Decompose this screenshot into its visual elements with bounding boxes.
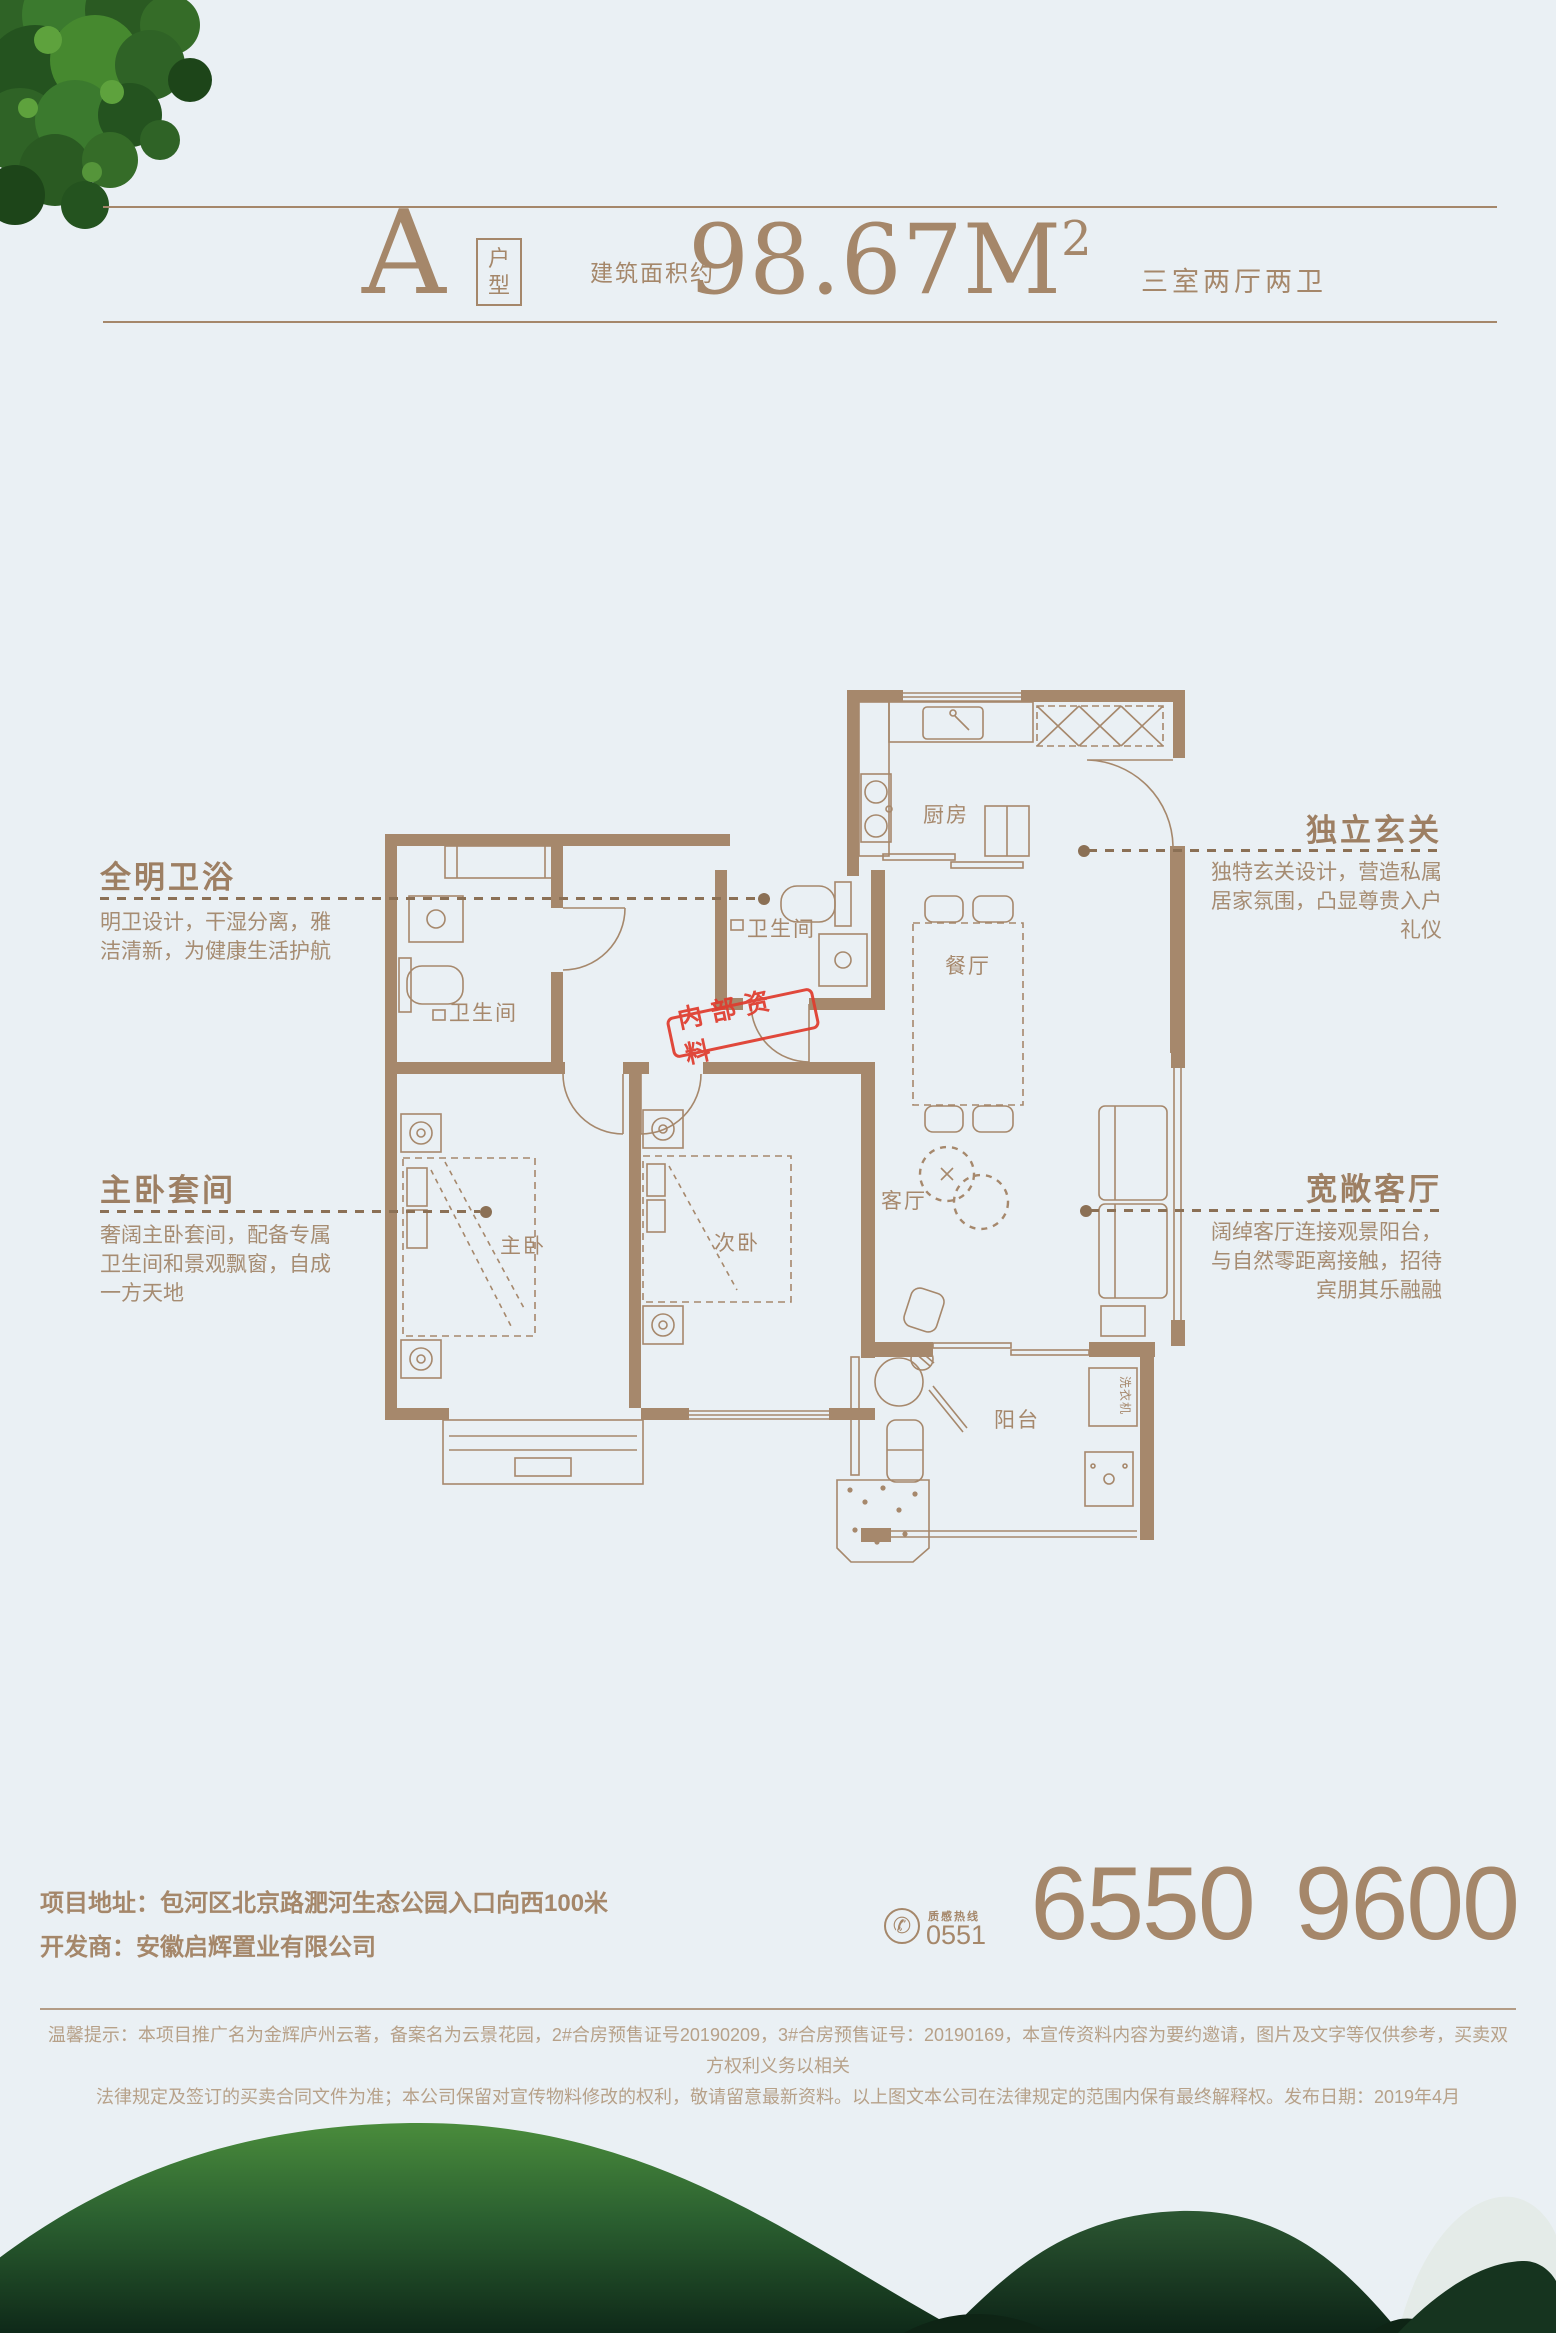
footer-divider [40, 2008, 1516, 2010]
developer-row: 开发商：安徽启辉置业有限公司 [40, 1926, 608, 1970]
callout-dot-foyer [1078, 845, 1090, 857]
callout-title-master-suite: 主卧套间 [100, 1165, 236, 1210]
room-label-kitchen: 厨房 [923, 804, 969, 827]
room-label-washer: 洗衣机 [1118, 1376, 1133, 1415]
developer-label: 开发商： [40, 1934, 136, 1961]
callout-dot-bathroom [758, 893, 770, 905]
callout-leader-bathroom [100, 897, 758, 900]
room-label-bath-master: 卫生间 [449, 1002, 518, 1025]
tree-foliage-decoration [0, 0, 220, 240]
project-address-row: 项目地址：包河区北京路淝河生态公园入口向西100米 [40, 1882, 608, 1926]
callout-title-foyer: 独立玄关 [1306, 805, 1442, 850]
mountain-forest-decoration [0, 2123, 1556, 2333]
disclaimer-text: 温馨提示：本项目推广名为金辉庐州云著，备案名为云景花园，2#合房预售证号2019… [40, 2020, 1516, 2113]
floorplan-poster: A 户型 建筑面积约 98.67M2 三室两厅两卫 [0, 0, 1556, 2333]
room-label-bath-main: 卫生间 [747, 918, 816, 941]
area-superscript: 2 [1061, 211, 1092, 267]
hotline-phone-number: 6550 9600 [958, 1852, 1518, 1956]
room-label-master-bedroom: 主卧 [500, 1235, 546, 1258]
callout-leader-foyer [1088, 849, 1442, 852]
phone-icon: ✆ [884, 1908, 920, 1944]
callout-leader-master-suite [100, 1210, 480, 1213]
callout-leader-living [1090, 1209, 1442, 1212]
callout-body-master-suite: 奢阔主卧套间，配备专属 卫生间和景观飘窗，自成 一方天地 [100, 1221, 380, 1308]
rooms-summary: 三室两厅两卫 [1141, 260, 1327, 299]
room-label-balcony: 阳台 [994, 1409, 1040, 1432]
callout-dot-living [1080, 1205, 1092, 1217]
callout-title-living: 宽敞客厅 [1306, 1164, 1442, 1209]
address-label: 项目地址： [40, 1890, 160, 1917]
plan-letter: A [362, 196, 446, 312]
walls [385, 690, 1185, 1542]
callout-body-foyer: 独特玄关设计，营造私属 居家氛围，凸显尊贵入户 礼仪 [1102, 858, 1442, 945]
callout-dot-master-suite [480, 1206, 492, 1218]
room-label-second-bedroom: 次卧 [714, 1232, 760, 1255]
callout-title-bathroom: 全明卫浴 [100, 852, 236, 897]
fixtures [399, 693, 1181, 1562]
room-label-living: 客厅 [881, 1190, 927, 1213]
floorplan-drawing: 厨房 餐厅 卫生间 卫生间 主卧 次卧 客厅 阳台 洗衣机 [385, 690, 1195, 1570]
plan-type-label: 户型 [476, 238, 522, 306]
room-label-dining: 餐厅 [945, 955, 991, 978]
callout-body-bathroom: 明卫设计，干湿分离，雅 洁清新，为健康生活护航 [100, 908, 380, 966]
area-value: 98.67M2 [688, 212, 1092, 308]
address-value: 包河区北京路淝河生态公园入口向西100米 [160, 1890, 608, 1917]
callout-body-living: 阔绰客厅连接观景阳台， 与自然零距离接触，招待 宾朋其乐融融 [1102, 1218, 1442, 1305]
header-bottom-rule [103, 321, 1497, 323]
developer-value: 安徽启辉置业有限公司 [136, 1934, 376, 1961]
project-info: 项目地址：包河区北京路淝河生态公园入口向西100米 开发商：安徽启辉置业有限公司 [40, 1882, 608, 1970]
